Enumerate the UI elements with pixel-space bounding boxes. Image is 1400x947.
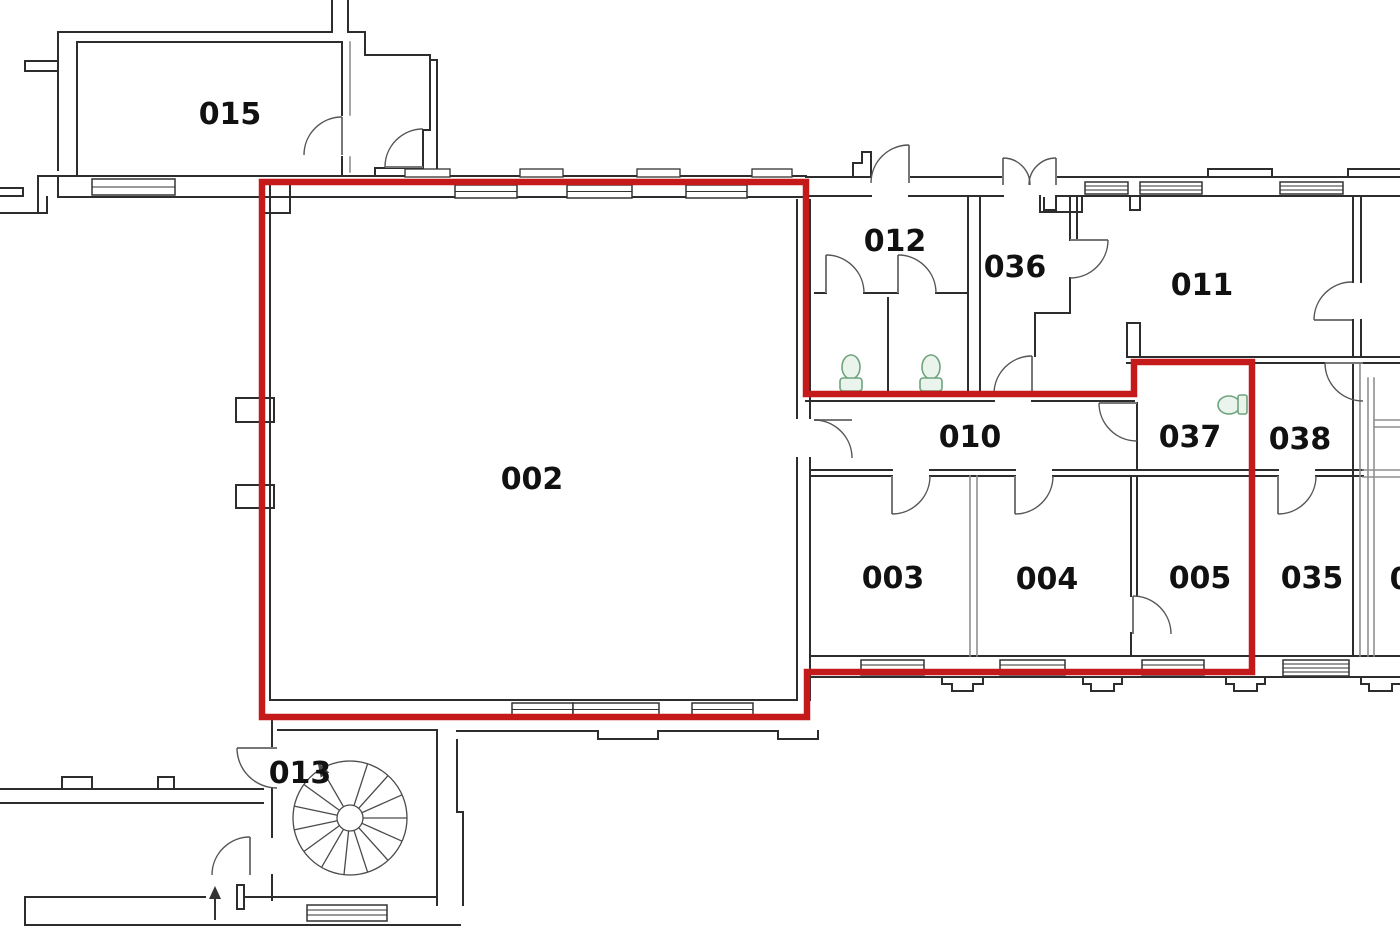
room-label-038: 038: [1269, 422, 1332, 457]
room-label-004: 004: [1016, 562, 1079, 597]
windows: [92, 169, 1349, 921]
doors: [212, 117, 1363, 875]
floor-plan-svg: 015 002 012 036 011 010 037 038 003 004 …: [0, 0, 1400, 947]
room-label-037: 037: [1159, 420, 1222, 455]
entrance-arrow-icon: [209, 886, 221, 920]
room-label-015: 015: [199, 97, 262, 132]
highlighted-area-outline: [262, 182, 1252, 717]
floor-plan-page: 015 002 012 036 011 010 037 038 003 004 …: [0, 0, 1400, 947]
walls: [0, 0, 1400, 925]
room-label-011: 011: [1171, 268, 1234, 303]
toilet-icon: [1218, 395, 1247, 414]
toilet-icon: [920, 355, 942, 391]
room-label-003: 003: [862, 561, 925, 596]
room-label-035: 035: [1281, 561, 1344, 596]
toilet-icon: [840, 355, 862, 391]
room-label-005: 005: [1169, 561, 1232, 596]
room-label-013: 013: [269, 756, 332, 791]
room-label-002: 002: [501, 462, 564, 497]
room-labels: 015 002 012 036 011 010 037 038 003 004 …: [199, 97, 1400, 791]
room-label-012: 012: [864, 224, 927, 259]
room-label-010: 010: [939, 420, 1002, 455]
room-label-partial: 0: [1390, 562, 1400, 597]
room-label-036: 036: [984, 250, 1047, 285]
